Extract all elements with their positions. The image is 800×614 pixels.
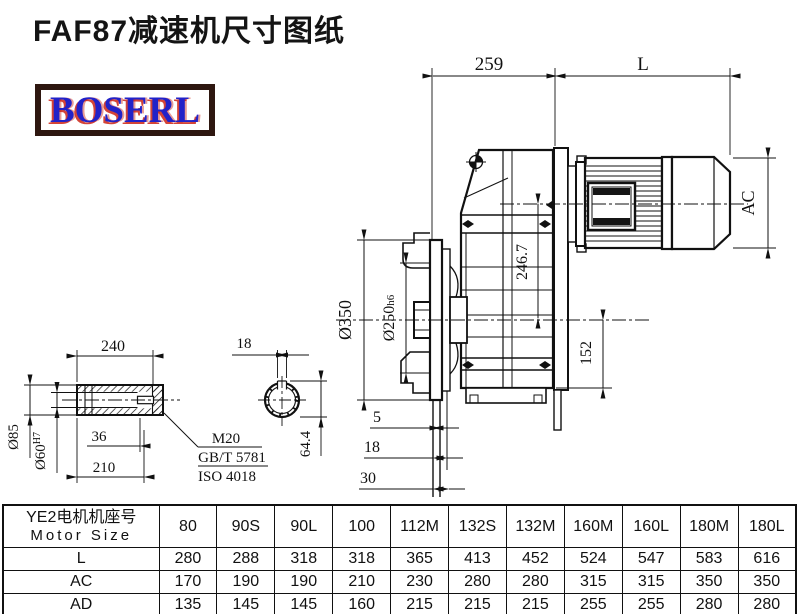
col-header: 80	[159, 505, 217, 548]
dim-5-label: 5	[373, 409, 381, 426]
col-header: 132S	[449, 505, 507, 548]
cell: 215	[391, 594, 449, 614]
dim-L-label: L	[637, 54, 649, 75]
cell: 190	[275, 571, 333, 594]
cell: 350	[738, 571, 796, 594]
col-header: 100	[333, 505, 391, 548]
dim-152-label: 152	[578, 341, 595, 365]
output-flange	[401, 233, 467, 497]
motor-size-header: YE2电机机座号 Motor Size	[3, 505, 159, 548]
cell: 288	[217, 548, 275, 571]
cell: 145	[275, 594, 333, 614]
dim-36-label: 36	[92, 429, 108, 445]
col-header: 160L	[622, 505, 680, 548]
cell: 315	[622, 571, 680, 594]
dim-spigot-label: Ø250h6	[381, 294, 398, 341]
col-header: 180M	[680, 505, 738, 548]
page-title: FAF87减速机尺寸图纸	[33, 6, 345, 50]
table-row-L: L 280 288 318 318 365 413 452 524 547 58…	[3, 548, 796, 571]
cell: 547	[622, 548, 680, 571]
cell: 318	[333, 548, 391, 571]
dim-shaft-od-label: Ø85	[6, 424, 22, 450]
dim-flange-od-label: Ø350	[335, 300, 355, 340]
page: 259 L AC Ø350 Ø250h6 246.7 152 5 18 30	[0, 0, 800, 614]
col-header: 180L	[738, 505, 796, 548]
cell: 160	[333, 594, 391, 614]
dim-210-label: 210	[93, 460, 116, 476]
cell: 215	[449, 594, 507, 614]
cell: 280	[506, 571, 564, 594]
col-header: 90L	[275, 505, 333, 548]
dim-center-height-label: 246.7	[514, 244, 531, 280]
standard-iso-label: ISO 4018	[198, 469, 256, 485]
cell: 280	[738, 594, 796, 614]
table-row-AC: AC 170 190 190 210 230 280 280 315 315 3…	[3, 571, 796, 594]
dim-240-label: 240	[101, 338, 125, 355]
col-header: 160M	[564, 505, 622, 548]
dim-key-height-label: 64.4	[298, 430, 314, 457]
cell: 170	[159, 571, 217, 594]
cell: 145	[217, 594, 275, 614]
shaft-section-view	[258, 376, 306, 426]
header-cn: YE2电机机座号	[4, 508, 159, 527]
dimension-drawing: 259 L AC Ø350 Ø250h6 246.7 152 5 18 30	[0, 0, 800, 505]
cell: 190	[217, 571, 275, 594]
cell: 215	[506, 594, 564, 614]
dim-AC-label: AC	[738, 190, 758, 215]
cell: 350	[680, 571, 738, 594]
hollow-shaft-view	[62, 385, 180, 415]
header-en: Motor Size	[4, 527, 159, 545]
cell: 413	[449, 548, 507, 571]
cell: 318	[275, 548, 333, 571]
dim-bore-label: Ø60H7	[32, 432, 49, 470]
cell: 280	[449, 571, 507, 594]
cell: 255	[622, 594, 680, 614]
boserl-logo-text: BOSERL	[50, 92, 200, 129]
cell: 583	[680, 548, 738, 571]
row-label: AC	[3, 571, 159, 594]
dim-18-flange-label: 18	[364, 439, 380, 456]
cell: 524	[564, 548, 622, 571]
dim-259-label: 259	[475, 54, 504, 75]
cell: 210	[333, 571, 391, 594]
cell: 255	[564, 594, 622, 614]
col-header: 90S	[217, 505, 275, 548]
dim-key-width-label: 18	[237, 336, 252, 352]
motor-nameplate	[588, 183, 635, 230]
cell: 315	[564, 571, 622, 594]
cell: 280	[680, 594, 738, 614]
cell: 135	[159, 594, 217, 614]
row-label: AD	[3, 594, 159, 614]
col-header: 132M	[506, 505, 564, 548]
col-header: 112M	[391, 505, 449, 548]
table-header-row: YE2电机机座号 Motor Size 80 90S 90L 100 112M …	[3, 505, 796, 548]
thread-callout-label: M20	[212, 431, 240, 447]
motor-fan-cover	[672, 157, 730, 249]
cell: 616	[738, 548, 796, 571]
row-label: L	[3, 548, 159, 571]
table-row-AD: AD 135 145 145 160 215 215 215 255 255 2…	[3, 594, 796, 614]
motor-size-table: YE2电机机座号 Motor Size 80 90S 90L 100 112M …	[2, 504, 797, 614]
boserl-logo: BOSERL	[35, 84, 215, 136]
cell: 365	[391, 548, 449, 571]
cell: 280	[159, 548, 217, 571]
dim-30-label: 30	[360, 470, 376, 487]
standard-gb-label: GB/T 5781	[198, 450, 266, 466]
cell: 452	[506, 548, 564, 571]
cell: 230	[391, 571, 449, 594]
